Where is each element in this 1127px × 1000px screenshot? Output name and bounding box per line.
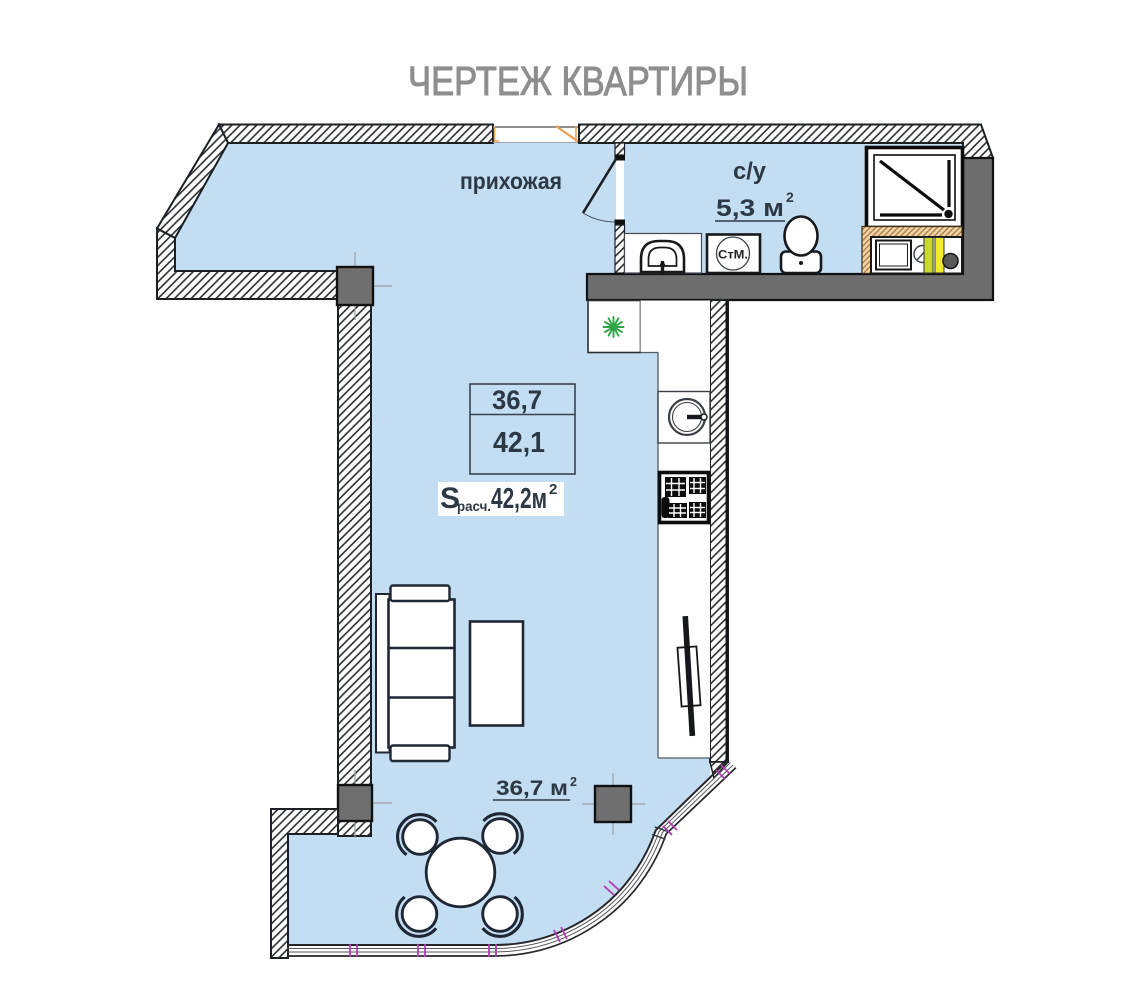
svg-text:расч.: расч. (457, 499, 491, 514)
svg-text:2: 2 (570, 775, 577, 789)
svg-text:2: 2 (549, 481, 557, 498)
svg-text:прихожая: прихожая (460, 168, 562, 194)
svg-text:ЧЕРТЕЖ КВАРТИРЫ: ЧЕРТЕЖ КВАРТИРЫ (408, 58, 748, 104)
svg-text:42,2м: 42,2м (491, 483, 547, 515)
svg-text:42,1: 42,1 (493, 427, 545, 459)
svg-text:5,3 м: 5,3 м (716, 195, 784, 222)
svg-text:36,7 м: 36,7 м (496, 777, 568, 800)
svg-text:СтМ.: СтМ. (718, 248, 748, 262)
svg-text:с/у: с/у (733, 158, 767, 185)
svg-text:2: 2 (786, 189, 794, 205)
svg-text:36,7: 36,7 (492, 385, 542, 415)
